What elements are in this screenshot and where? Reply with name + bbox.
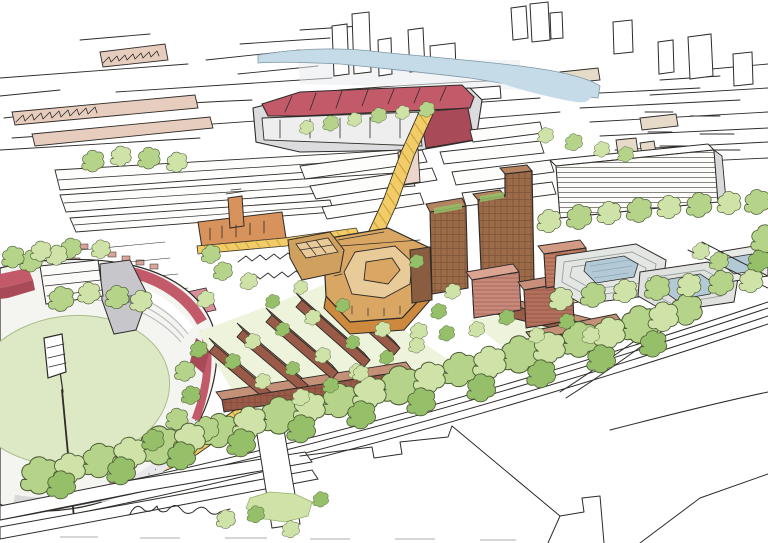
sketch-illustration [0, 0, 768, 543]
clock-tower [228, 196, 244, 228]
masterplan-sketch-svg [0, 0, 768, 543]
